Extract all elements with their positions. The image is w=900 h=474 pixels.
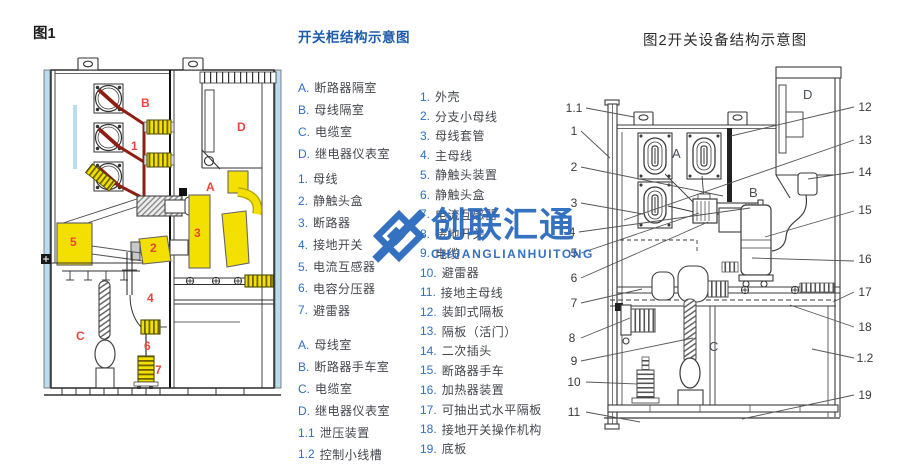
fig1-label-1: 1 [131,139,138,153]
fig1-label-A: A [206,180,215,194]
fig1-label-6: 6 [144,339,151,353]
legend-item: 5.电流互感器 [298,256,376,278]
legend-item: 10.避雷器 [420,263,542,283]
fig1-caption: 图1 [33,22,56,43]
watermark-logo-icon [371,208,427,264]
item-num: 2. [298,194,308,208]
item-text: 母线套管 [435,127,485,144]
legend-item: 1.2控制小线槽 [298,443,390,465]
item-num: A. [298,81,309,95]
item-num: 2. [420,109,430,123]
item-text: 母线室 [314,336,352,353]
item-num: D. [298,404,310,418]
item-num: C. [298,125,310,139]
item-num: 1.2 [298,447,315,461]
fig1-label-4: 4 [147,291,154,305]
item-num: 4. [298,238,308,252]
legend-item: C.电缆室 [298,121,390,143]
item-text: 装卸式隔板 [442,303,505,320]
legend-item: 19.底板 [420,439,542,459]
legend-item: B.断路器手车室 [298,356,390,378]
item-num: 19. [420,442,437,456]
fig1-label-3: 3 [194,226,201,240]
fig2-label-C: C [709,339,718,354]
fig2-callout-6: 6 [571,271,578,285]
item-text: 外壳 [435,88,460,105]
legend-item: 5.静触头装置 [420,165,542,185]
fig2-callout-8: 8 [569,331,576,345]
item-num: 11. [420,285,436,299]
legend1-title: 开关柜结构示意图 [298,26,410,46]
item-num: 5. [420,168,430,182]
legend-item: 18.接地开关操作机构 [420,419,542,439]
item-num: A. [298,338,309,352]
item-num: 16. [420,383,437,397]
item-num: 6. [420,188,430,202]
item-text: 加热器装置 [442,381,505,398]
watermark-cn-text: 创联汇通 [431,208,594,245]
item-num: B. [298,103,309,117]
fig2-callout-11: 11 [568,405,581,419]
item-text: 断路器手车 [442,362,505,379]
legend-item: A.断路器隔室 [298,77,390,99]
item-text: 电流互感器 [313,258,376,275]
item-text: 继电器仪表室 [315,402,390,419]
item-text: 主母线 [435,147,473,164]
item-text: 母线 [313,170,338,187]
legend-item: 16.加热器装置 [420,380,542,400]
item-num: 14. [420,344,437,358]
legend1-letters: A.断路器隔室 B.母线隔室 C.电缆室 D.继电器仪表室 [298,77,390,165]
legend-item: 6.电容分压器 [298,277,376,299]
item-num: 6. [298,281,308,295]
item-text: 静触头盒 [435,186,485,203]
legend1-numbers: 1.母线 2.静触头盒 3.断路器 4.接地开关 5.电流互感器 6.电容分压器… [298,168,376,321]
item-text: 断路器隔室 [314,79,377,96]
legend-item: 1.外壳 [420,87,542,107]
legend-item: 3.母线套管 [420,126,542,146]
legend-item: 4.主母线 [420,146,542,166]
item-text: 接地主母线 [441,284,504,301]
watermark: 创联汇通 CHUANGLIANHUITONG [371,208,594,264]
legend-item: 15.断路器手车 [420,361,542,381]
fig2-callout-14: 14 [858,165,872,179]
legend-item: D.继电器仪表室 [298,143,390,165]
item-text: 电缆室 [315,123,353,140]
fig2-callout-19: 19 [858,388,872,402]
fig2-callout-13: 13 [858,133,872,147]
legend-item: 17.可抽出式水平隔板 [420,400,542,420]
fig2-label-D: D [803,87,812,102]
item-text: 控制小线槽 [320,446,383,463]
legend-item: 6.静触头盒 [420,185,542,205]
fig2-callout-17: 17 [858,285,872,299]
item-num: C. [298,382,310,396]
fig1-label-D: D [237,120,246,134]
legend-item: 12.装卸式隔板 [420,302,542,322]
item-text: 避雷器 [442,264,480,281]
item-num: 10. [420,266,437,280]
item-num: 13. [420,324,437,338]
item-num: D. [298,147,310,161]
fig2-label-A: A [672,146,681,161]
fig2-callout-1.2: 1.2 [857,351,874,365]
legend-item: C.电缆室 [298,378,390,400]
item-text: 分支小母线 [435,108,498,125]
item-num: 1. [298,172,308,186]
fig1-label-2: 2 [150,241,157,255]
page: 图1 图2开关设备结构示意图 开关柜结构示意图 A.断路器隔室 B.母线隔室 C… [0,0,900,474]
legend-item: A.母线室 [298,334,390,356]
item-num: 1.1 [298,426,315,440]
legend-item: 2.静触头盒 [298,190,376,212]
fig1-label-7: 7 [155,363,162,377]
item-text: 静触头装置 [435,166,498,183]
item-text: 隔板（活门） [442,323,517,340]
fig2-label-B: B [749,185,758,200]
fig2-callout-10: 10 [567,375,581,389]
item-text: 二次插头 [442,342,492,359]
legend-item: B.母线隔室 [298,99,390,121]
legend-item: 7.避雷器 [298,299,376,321]
legend1-rooms: A.母线室 B.断路器手车室 C.电缆室 D.继电器仪表室 1.1泄压装置 1.… [298,334,390,465]
fig2-callout-15: 15 [858,203,872,217]
item-text: 断路器 [313,214,351,231]
item-text: 静触头盒 [313,192,363,209]
legend-item: 1.1泄压装置 [298,422,390,444]
fig2-callout-7: 7 [571,296,578,310]
fig2-callout-16: 16 [858,252,872,266]
item-text: 底板 [442,440,467,457]
item-num: 4. [420,148,430,162]
fig2-drawing: A B C D 1.1 1 2 3 4 5 6 7 8 9 10 11 12 1… [566,67,874,429]
legend-item: 11.接地主母线 [420,282,542,302]
legend-item: D.继电器仪表室 [298,400,390,422]
fig1-drawing: B D 1 A 5 2 3 4 C 6 7 [41,58,281,395]
item-num: 15. [420,363,437,377]
legend-item: 3.断路器 [298,212,376,234]
fig2-callout-9: 9 [571,354,578,368]
item-text: 接地开关 [313,236,363,253]
item-num: B. [298,360,309,374]
item-text: 断路器手车室 [314,358,389,375]
item-num: 5. [298,260,308,274]
fig2-callout-12: 12 [858,100,872,114]
item-text: 可抽出式水平隔板 [442,401,542,418]
legend-item: 4.接地开关 [298,234,376,256]
fig2-callout-1.1: 1.1 [566,101,583,115]
legend-column-2: 1.外壳 2.分支小母线 3.母线套管 4.主母线 5.静触头装置 6.静触头盒… [420,87,542,458]
item-num: 7. [298,303,308,317]
item-text: 继电器仪表室 [315,145,390,162]
legend-item: 14.二次插头 [420,341,542,361]
fig2-callout-1: 1 [571,124,578,138]
legend-item: 13.隔板（活门） [420,322,542,342]
fig1-label-B: B [141,96,150,110]
item-text: 避雷器 [313,302,351,319]
fig2-callout-2: 2 [571,160,578,174]
fig1-label-5: 5 [70,235,77,249]
item-num: 3. [298,216,308,230]
item-text: 电缆室 [315,380,353,397]
item-num: 12. [420,305,437,319]
item-text: 母线隔室 [314,101,364,118]
item-num: 17. [420,403,437,417]
fig1-label-C: C [76,329,85,343]
legend-item: 2.分支小母线 [420,107,542,127]
fig2-callout-18: 18 [858,320,872,334]
watermark-en-text: CHUANGLIANHUITONG [431,247,594,261]
legend-item: 1.母线 [298,168,376,190]
item-num: 1. [420,90,430,104]
item-text: 接地开关操作机构 [442,421,542,438]
item-num: 3. [420,129,430,143]
item-num: 18. [420,422,437,436]
item-text: 泄压装置 [320,424,370,441]
fig2-title: 图2开关设备结构示意图 [643,29,807,50]
item-text: 电容分压器 [313,280,376,297]
